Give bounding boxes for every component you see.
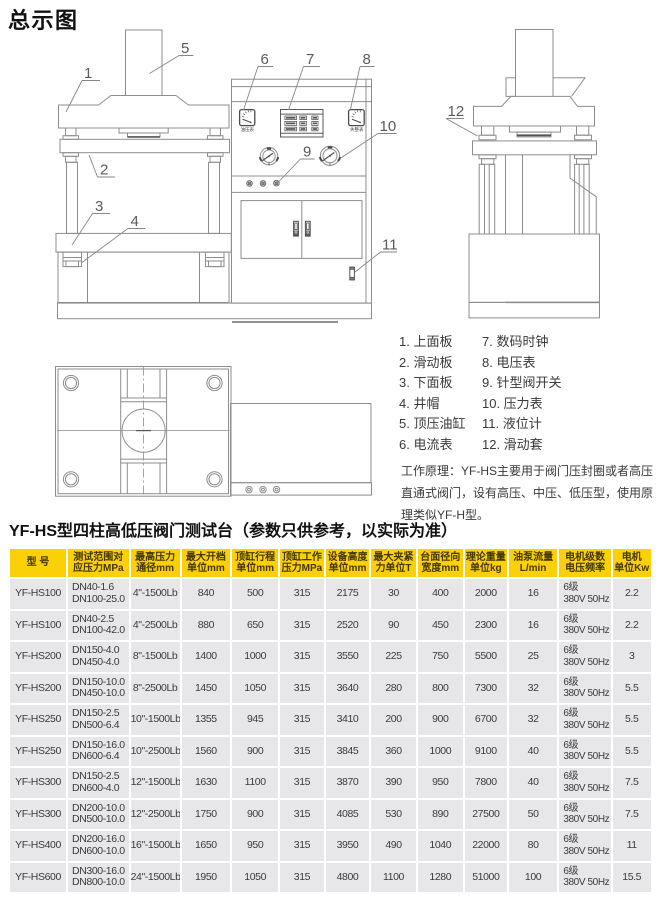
svg-text:3: 3 — [95, 198, 103, 215]
svg-text:4: 4 — [131, 213, 139, 230]
svg-text:8: 8 — [363, 51, 371, 68]
svg-text:油压表: 油压表 — [241, 126, 255, 133]
svg-text:失整表: 失整表 — [350, 126, 364, 133]
svg-text:10: 10 — [380, 118, 397, 135]
svg-text:1: 1 — [84, 65, 92, 82]
svg-text:5: 5 — [181, 40, 189, 57]
svg-text:7: 7 — [306, 51, 314, 68]
svg-text:9: 9 — [303, 144, 311, 161]
svg-text:2: 2 — [100, 162, 108, 179]
svg-text:11: 11 — [382, 237, 398, 254]
svg-text:12: 12 — [448, 103, 465, 120]
svg-text:6: 6 — [261, 51, 269, 68]
